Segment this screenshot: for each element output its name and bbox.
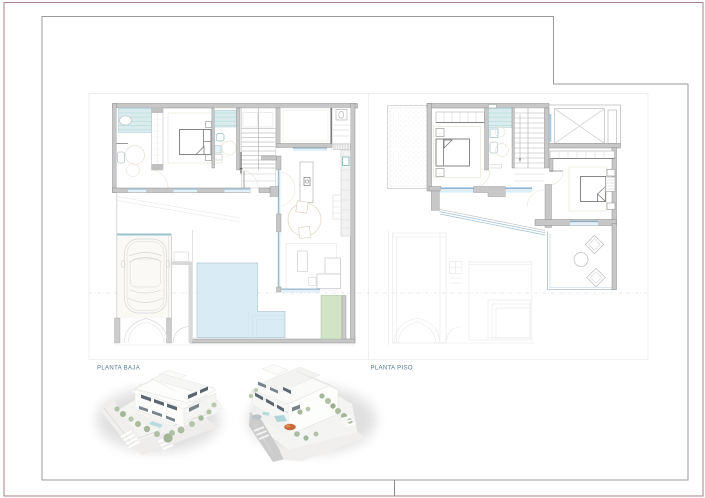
svg-text:PLANTA PISO: PLANTA PISO	[371, 366, 413, 372]
svg-text:PLANTA BAJA: PLANTA BAJA	[97, 366, 140, 372]
